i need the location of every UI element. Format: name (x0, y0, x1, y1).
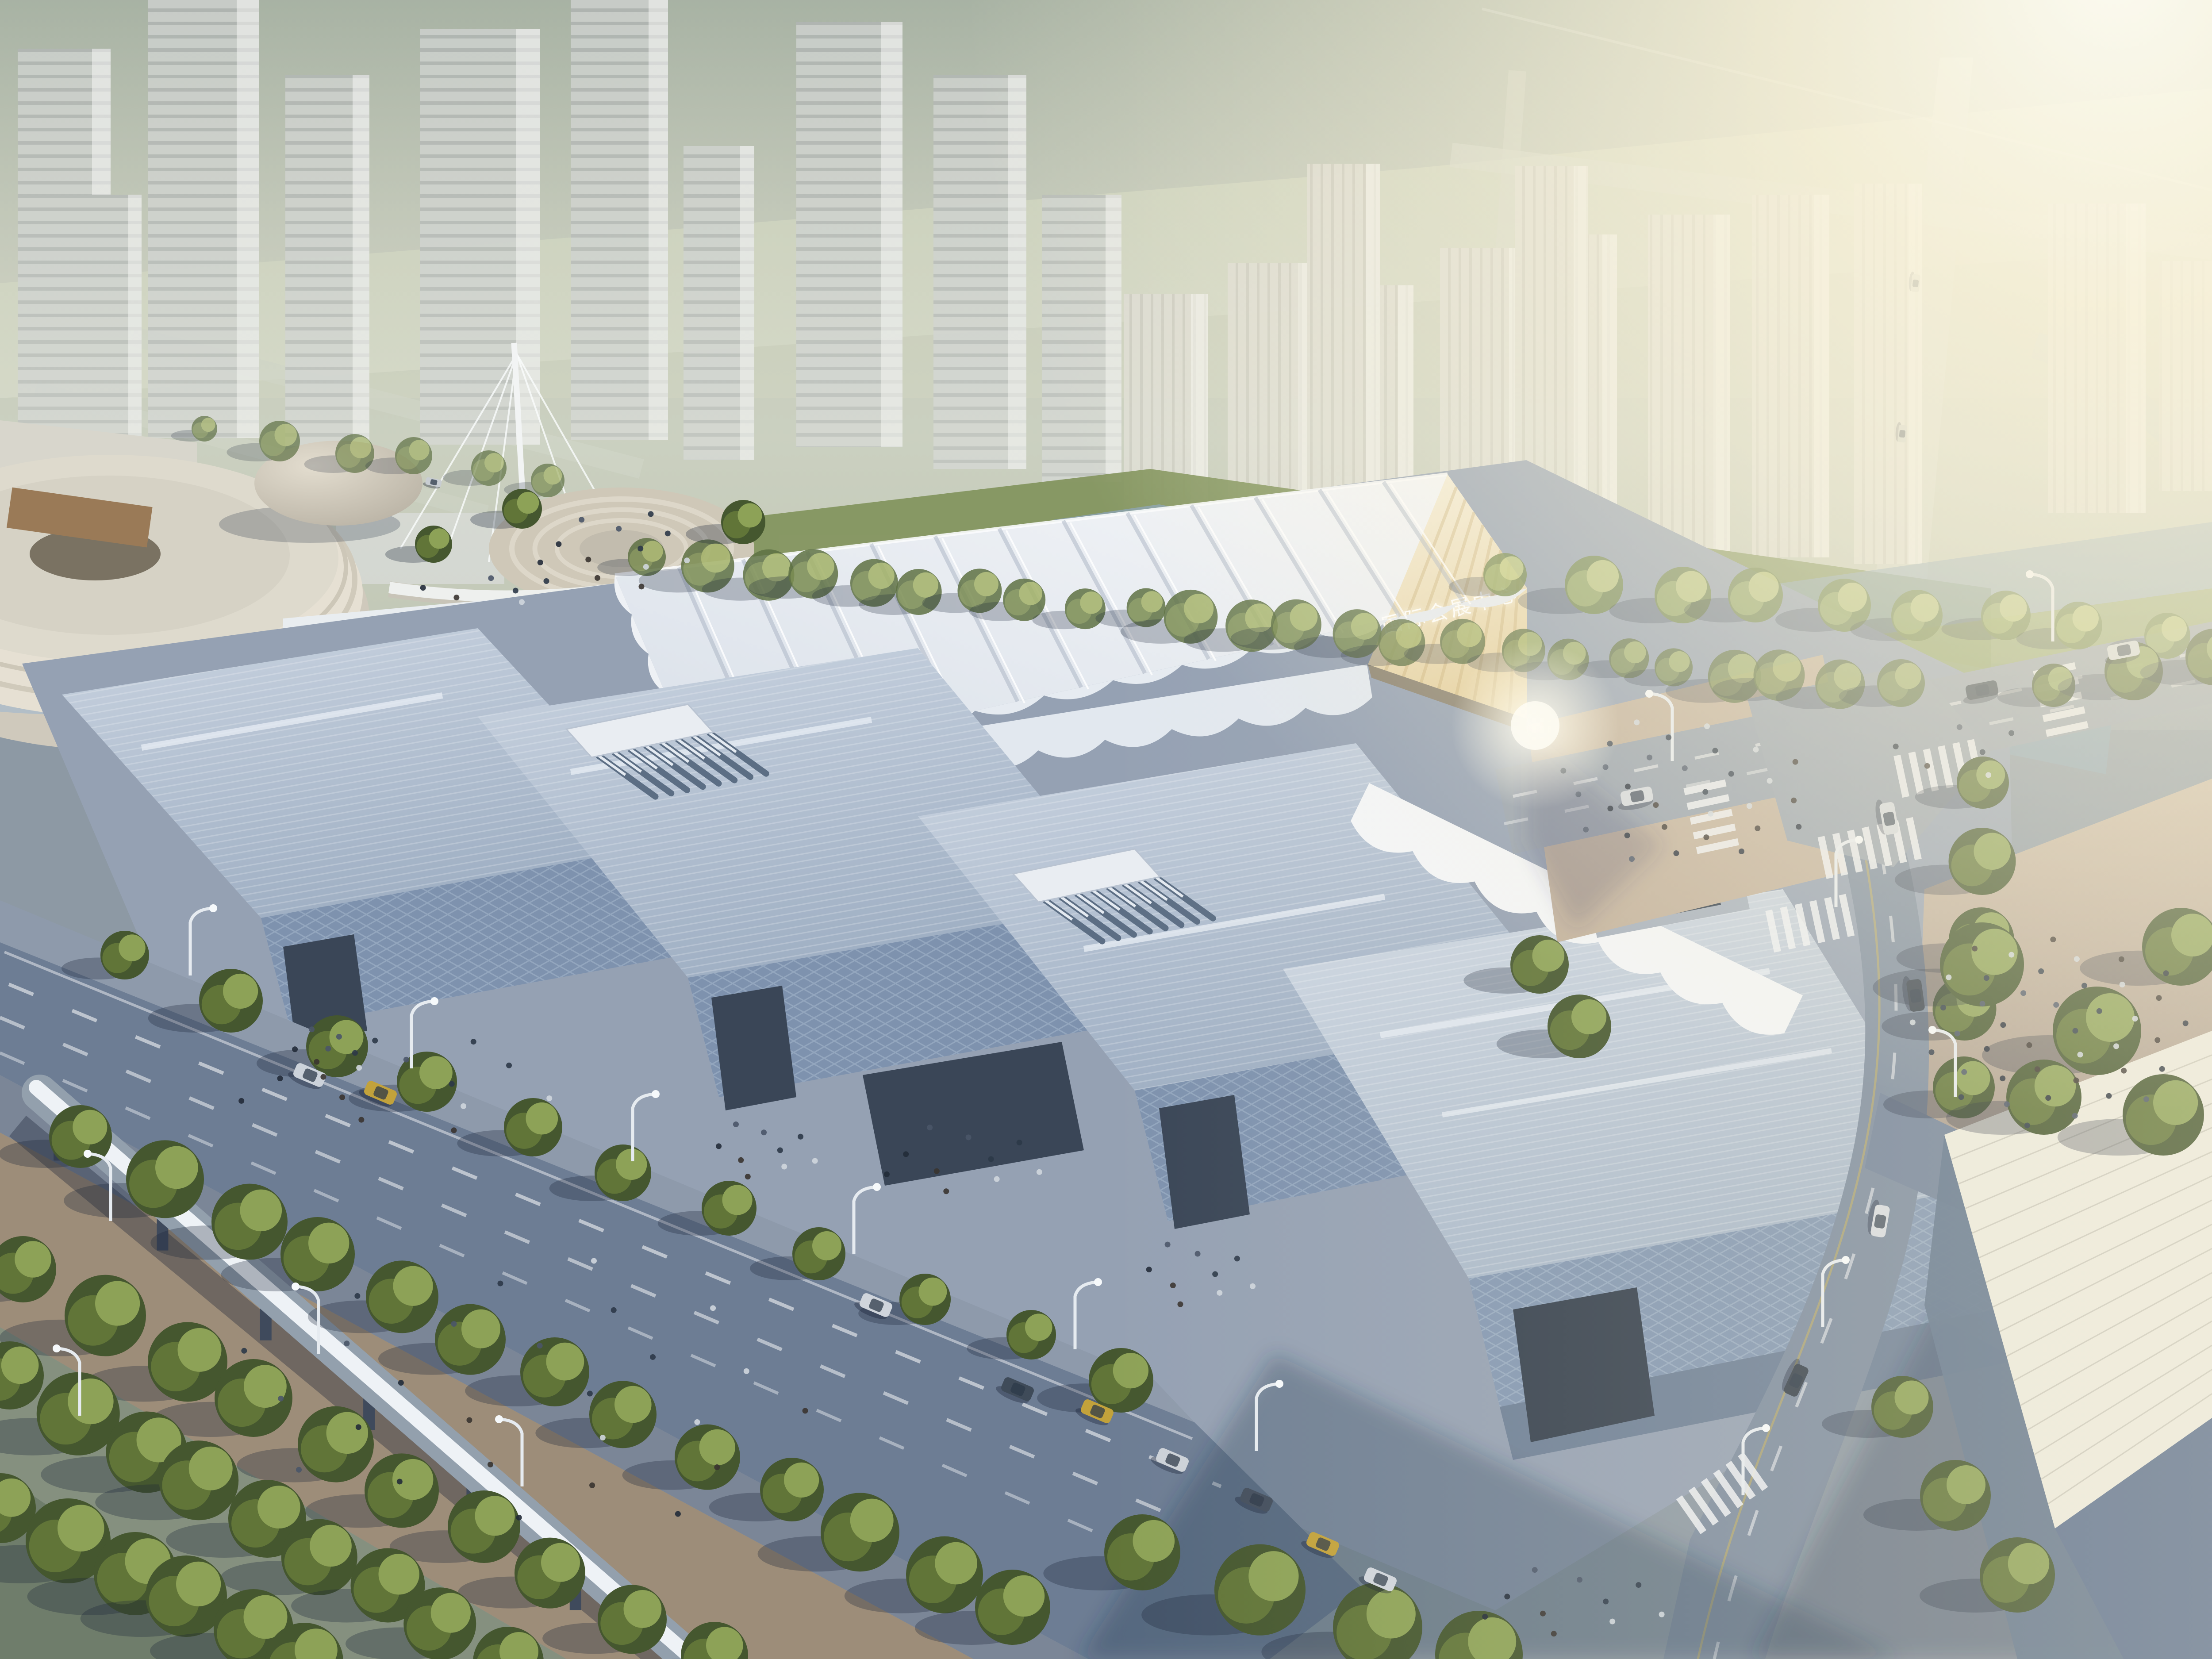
architectural-rendering: 国际会展中心 (0, 0, 2212, 1659)
atmosphere-overlays (0, 0, 2212, 1659)
scene-canvas: 国际会展中心 (0, 0, 2212, 1659)
